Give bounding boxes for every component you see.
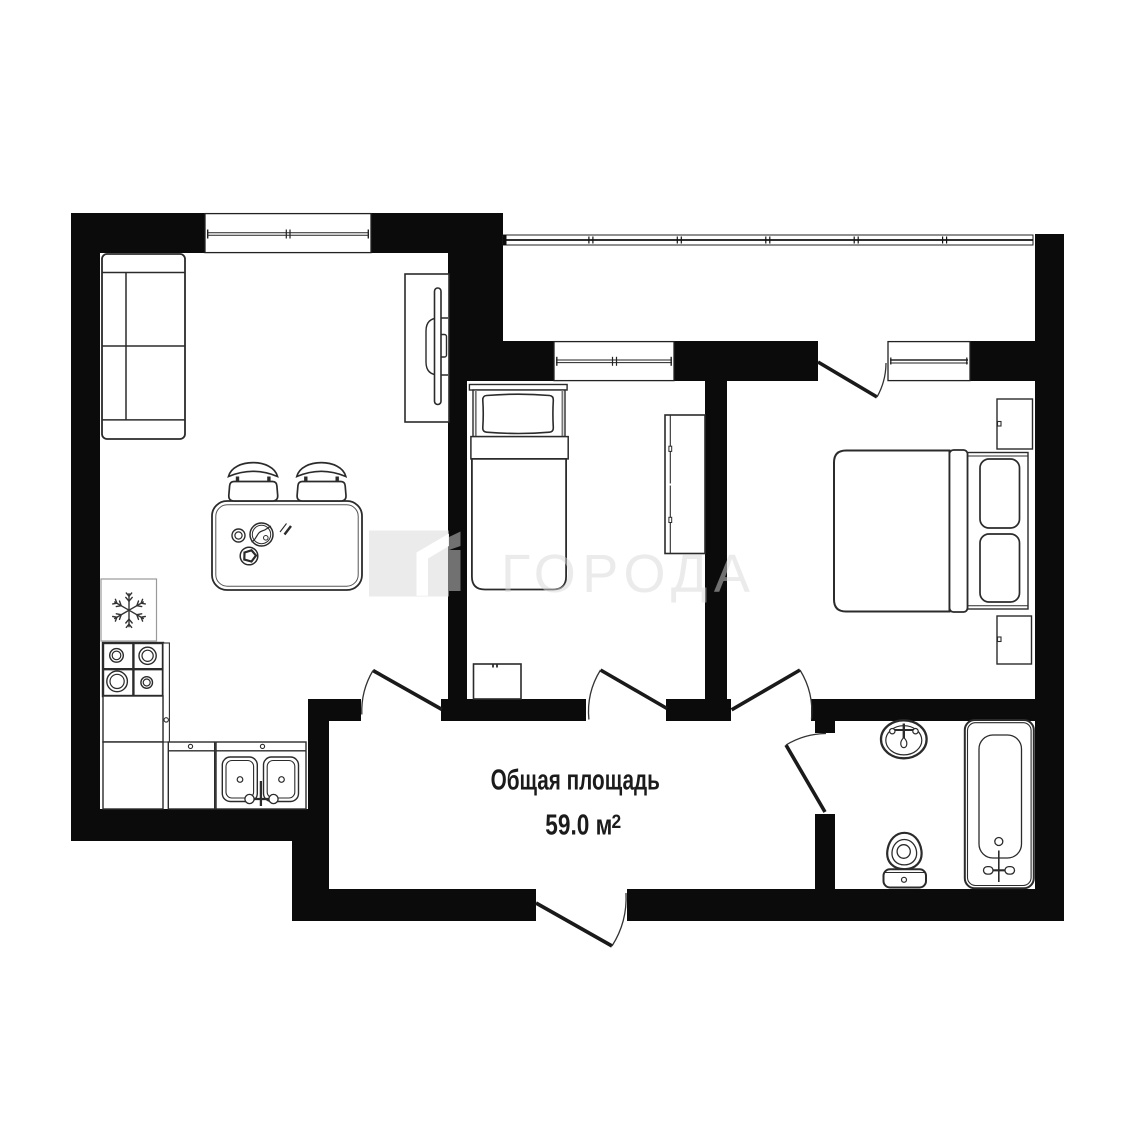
svg-text:Общая площадь: Общая площадь (491, 764, 660, 796)
svg-text:59.0 м: 59.0 м (545, 809, 612, 841)
svg-text:2: 2 (612, 811, 622, 833)
svg-text:ГОРОДА: ГОРОДА (501, 544, 756, 604)
